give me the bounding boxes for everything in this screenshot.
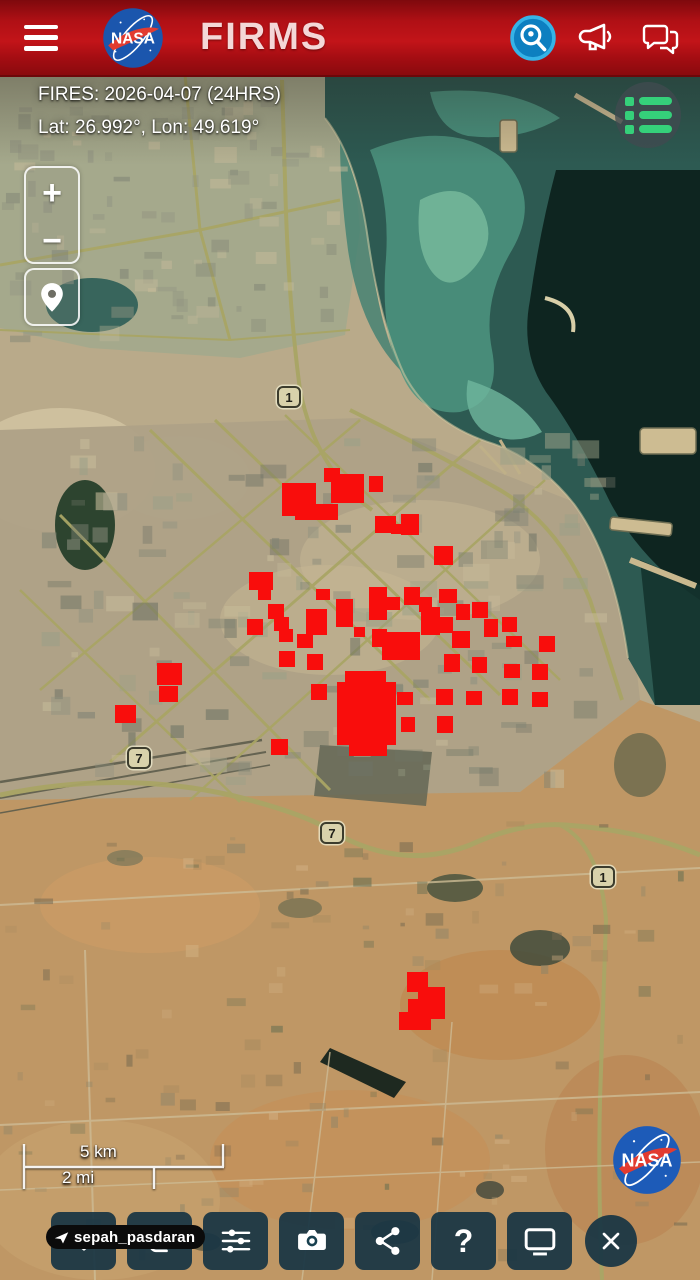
watermark-text: sepah_pasdaran bbox=[74, 1229, 195, 1246]
fire-marker[interactable] bbox=[336, 599, 353, 627]
fire-marker[interactable] bbox=[466, 691, 482, 705]
fire-marker[interactable] bbox=[279, 651, 295, 667]
adjustments-button[interactable] bbox=[203, 1212, 268, 1270]
route-shield: 1 bbox=[277, 386, 301, 408]
fire-marker[interactable] bbox=[436, 689, 453, 705]
coordinates-label: Lat: 26.992°, Lon: 49.619° bbox=[38, 117, 281, 139]
nasa-logo[interactable]: NASA bbox=[102, 7, 164, 69]
map-pin-icon bbox=[35, 278, 69, 316]
fire-marker[interactable] bbox=[311, 684, 327, 700]
close-button[interactable] bbox=[585, 1215, 637, 1267]
fire-marker[interactable] bbox=[397, 692, 413, 705]
scale-km-label: 5 km bbox=[80, 1142, 117, 1162]
fire-marker[interactable] bbox=[369, 587, 387, 620]
fire-marker[interactable] bbox=[502, 689, 518, 705]
fire-marker[interactable] bbox=[297, 634, 313, 648]
fire-marker[interactable] bbox=[387, 597, 400, 610]
locate-button[interactable] bbox=[24, 268, 80, 326]
zoom-control: + − bbox=[24, 166, 80, 264]
route-shield: 1 bbox=[591, 866, 615, 888]
fire-marker[interactable] bbox=[484, 619, 498, 637]
fire-marker[interactable] bbox=[337, 682, 396, 745]
fire-marker[interactable] bbox=[324, 468, 340, 482]
chat-bubbles-icon[interactable] bbox=[638, 15, 684, 61]
fire-marker[interactable] bbox=[502, 617, 517, 632]
zoom-out-button[interactable]: − bbox=[42, 224, 62, 258]
paper-plane-icon bbox=[54, 1230, 69, 1245]
fire-marker[interactable] bbox=[306, 609, 327, 635]
fire-marker[interactable] bbox=[271, 739, 288, 755]
fire-marker[interactable] bbox=[434, 546, 453, 565]
fire-marker[interactable] bbox=[456, 604, 470, 620]
layer-list-button[interactable] bbox=[615, 82, 681, 148]
scale-bar: 5 km 2 mi bbox=[22, 1140, 228, 1192]
fire-marker[interactable] bbox=[316, 589, 330, 600]
fire-marker[interactable] bbox=[404, 587, 420, 605]
fire-marker[interactable] bbox=[532, 664, 548, 680]
fire-marker[interactable] bbox=[472, 657, 487, 673]
fire-marker[interactable] bbox=[401, 514, 419, 535]
megaphone-icon[interactable] bbox=[574, 15, 620, 61]
fire-marker[interactable] bbox=[349, 739, 387, 756]
fire-marker[interactable] bbox=[437, 716, 453, 733]
fire-marker[interactable] bbox=[295, 504, 338, 520]
close-x-icon bbox=[597, 1227, 625, 1255]
header-actions bbox=[510, 15, 684, 61]
fire-marker[interactable] bbox=[354, 627, 365, 637]
satellite-map[interactable] bbox=[0, 0, 700, 1280]
desktop-view-button[interactable] bbox=[507, 1212, 572, 1270]
page-title: FIRMS bbox=[200, 16, 328, 59]
fires-date-label: FIRES: 2026-04-07 (24HRS) bbox=[38, 84, 281, 106]
zoom-in-button[interactable]: + bbox=[42, 176, 62, 210]
sliders-icon bbox=[217, 1223, 255, 1259]
fire-marker[interactable] bbox=[279, 629, 293, 642]
share-button[interactable] bbox=[355, 1212, 420, 1270]
fire-marker[interactable] bbox=[539, 636, 555, 652]
scale-mi-label: 2 mi bbox=[62, 1168, 94, 1188]
fire-marker[interactable] bbox=[444, 654, 460, 672]
fire-marker[interactable] bbox=[307, 654, 323, 670]
fire-marker[interactable] bbox=[437, 617, 453, 633]
fire-marker[interactable] bbox=[369, 476, 383, 492]
app-header: NASA FIRMS bbox=[0, 0, 700, 77]
fire-marker[interactable] bbox=[157, 663, 182, 685]
watermark-badge: sepah_pasdaran bbox=[46, 1225, 205, 1249]
share-nodes-icon bbox=[370, 1223, 406, 1259]
search-location-icon[interactable] bbox=[510, 15, 556, 61]
fire-marker[interactable] bbox=[452, 631, 470, 648]
fire-marker[interactable] bbox=[249, 572, 273, 590]
nasa-attribution-text: NASA bbox=[621, 1150, 672, 1170]
fire-marker[interactable] bbox=[401, 717, 415, 732]
monitor-icon bbox=[520, 1222, 560, 1260]
nasa-logo-text: NASA bbox=[111, 30, 155, 47]
fire-marker[interactable] bbox=[247, 619, 263, 635]
camera-icon bbox=[293, 1223, 331, 1259]
screenshot-button[interactable] bbox=[279, 1212, 344, 1270]
fire-marker[interactable] bbox=[159, 686, 178, 702]
fire-marker[interactable] bbox=[532, 692, 548, 707]
menu-icon[interactable] bbox=[24, 25, 58, 51]
fire-marker[interactable] bbox=[258, 589, 271, 600]
fire-marker[interactable] bbox=[382, 632, 420, 660]
map-status: FIRES: 2026-04-07 (24HRS) Lat: 26.992°, … bbox=[38, 84, 281, 139]
help-button[interactable]: ? bbox=[431, 1212, 496, 1270]
fire-marker[interactable] bbox=[408, 999, 423, 1014]
fire-marker[interactable] bbox=[472, 602, 488, 618]
question-mark-icon: ? bbox=[454, 1223, 474, 1260]
nasa-attribution-logo: NASA bbox=[611, 1124, 683, 1196]
fire-marker[interactable] bbox=[506, 636, 522, 647]
fire-marker[interactable] bbox=[504, 664, 520, 678]
route-shield: 7 bbox=[320, 822, 344, 844]
route-shield: 7 bbox=[127, 747, 151, 769]
fire-marker[interactable] bbox=[399, 1012, 431, 1030]
green-list-icon bbox=[625, 97, 672, 106]
fire-marker[interactable] bbox=[115, 705, 136, 723]
fire-marker[interactable] bbox=[439, 589, 457, 603]
